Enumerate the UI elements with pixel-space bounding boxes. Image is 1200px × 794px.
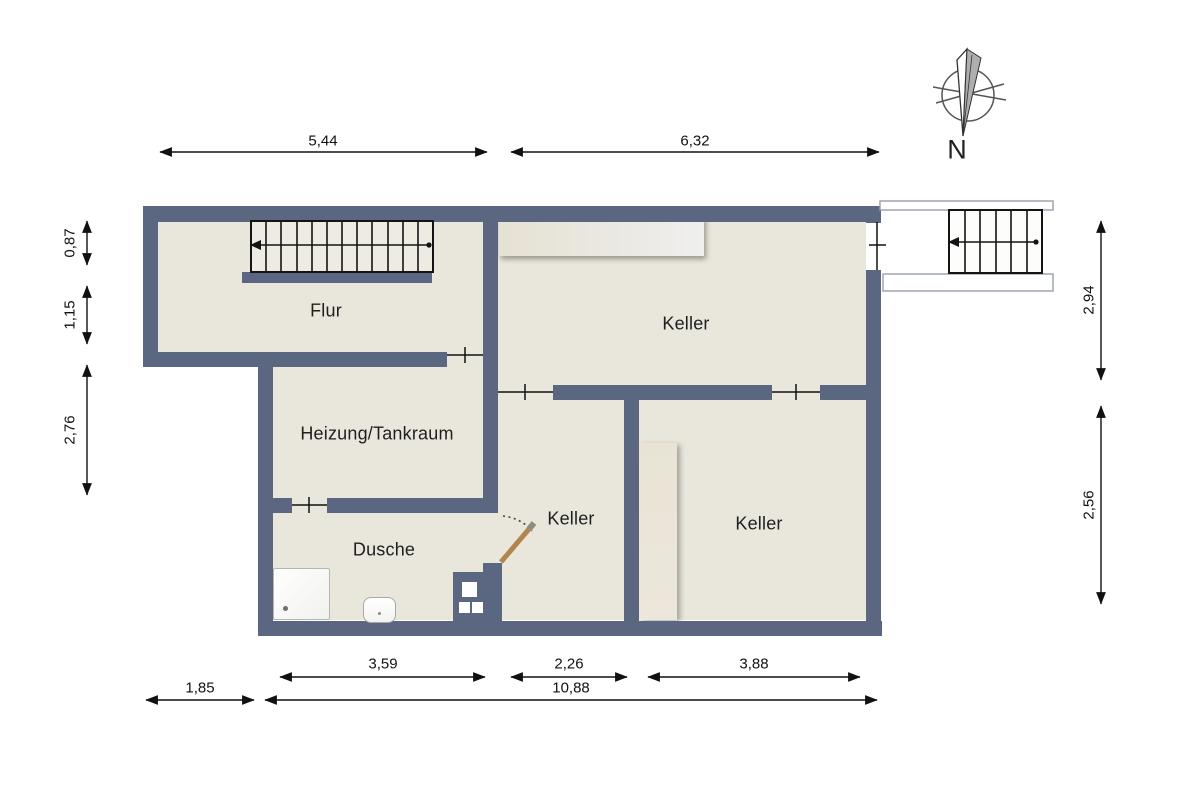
- dimension-label-left-middle: 1,15: [62, 300, 79, 329]
- dimension-label-bottom-keller-rechts: 3,88: [739, 656, 768, 673]
- wall-flur-bottom: [143, 352, 447, 367]
- wall-keller-divider-right: [820, 385, 866, 400]
- dimension-label-top-right: 6,32: [680, 133, 709, 150]
- floor-area-lower: [258, 367, 866, 620]
- wall-heizung-bottom-stub: [273, 498, 292, 513]
- floor-plan: Flur Keller Heizung/Tankraum Dusche Kell…: [0, 0, 1200, 794]
- dimension-label-bottom-keller-mitte: 2,26: [554, 656, 583, 673]
- chimney-block: [453, 572, 502, 621]
- compass-north-label: N: [947, 135, 967, 166]
- dimension-label-top-left: 5,44: [308, 133, 337, 150]
- wall-mid-divider-vertical: [624, 400, 639, 621]
- shower-tray: [273, 568, 330, 620]
- washbasin-drain: [378, 612, 381, 615]
- dimension-label-bottom-offset: 1,85: [185, 680, 214, 697]
- room-label-keller-mitte: Keller: [547, 509, 594, 530]
- stairs-exterior: [880, 201, 1053, 291]
- keller-top-fixture: [499, 217, 704, 256]
- wall-left-upper: [143, 206, 158, 367]
- washbasin: [363, 597, 396, 623]
- shower-drain: [283, 606, 288, 611]
- wall-left-lower: [258, 352, 273, 636]
- wall-mid-vertical: [483, 222, 498, 513]
- wall-bottom: [258, 621, 882, 636]
- compass-icon: [933, 49, 1006, 136]
- chimney-flue-small-left: [459, 602, 470, 613]
- room-label-dusche: Dusche: [353, 540, 415, 561]
- dimension-label-right-upper: 2,94: [1081, 285, 1098, 314]
- wall-top: [143, 206, 881, 222]
- wall-keller-divider-left: [553, 385, 772, 400]
- wall-heizung-bottom: [327, 498, 483, 513]
- keller-right-fixture: [639, 443, 677, 620]
- chimney-flue-small-right: [472, 602, 483, 613]
- room-label-heizung-tankraum: Heizung/Tankraum: [300, 424, 453, 445]
- chimney-flue-large: [462, 582, 477, 597]
- wall-right: [866, 270, 881, 636]
- room-label-keller-rechts: Keller: [735, 514, 782, 535]
- room-label-flur: Flur: [310, 301, 342, 322]
- dimension-label-left-upper: 0,87: [62, 228, 79, 257]
- wall-right-stub-top: [866, 217, 881, 223]
- dimension-label-right-lower: 2,56: [1081, 490, 1098, 519]
- room-label-keller-top: Keller: [662, 314, 709, 335]
- dimension-label-bottom-total: 10,88: [552, 680, 590, 697]
- dimension-label-bottom-dusche: 3,59: [368, 656, 397, 673]
- dimension-label-left-lower: 2,76: [62, 415, 79, 444]
- wall-under-stairs: [242, 272, 432, 283]
